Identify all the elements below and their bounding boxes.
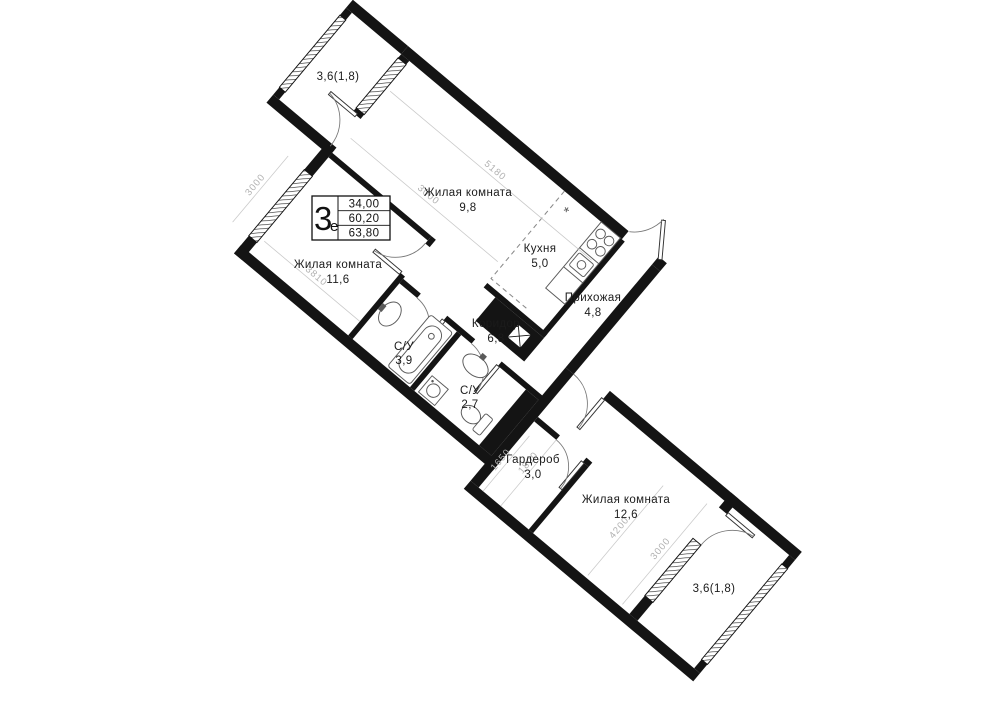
svg-text:Прихожая: Прихожая <box>565 292 622 304</box>
svg-text:Кухня: Кухня <box>524 243 557 255</box>
room-label-balcony-bottom: 3,6(1,8) <box>693 583 736 595</box>
plan-geometry: * 5180 3000 3810 3000 1650 1800 4200 300… <box>158 0 909 681</box>
room-label-kitchen: Кухня 5,0 <box>524 243 557 270</box>
svg-text:5,0: 5,0 <box>531 258 548 270</box>
room-label-balcony-top: 3,6(1,8) <box>317 71 360 83</box>
vent-symbol: * <box>557 204 572 220</box>
svg-text:9,8: 9,8 <box>459 202 476 214</box>
svg-text:Жилая комната: Жилая комната <box>424 187 512 199</box>
entrance-door <box>628 207 683 261</box>
glazing-balcony-bottom <box>702 564 788 665</box>
svg-text:3,0: 3,0 <box>524 469 541 481</box>
svg-text:4,8: 4,8 <box>584 307 601 319</box>
badge-total-area: 63,80 <box>349 228 380 240</box>
svg-text:6,8: 6,8 <box>487 333 504 345</box>
door-living3-balcony <box>701 513 755 568</box>
svg-text:Гардероб: Гардероб <box>506 454 560 466</box>
svg-text:С/У: С/У <box>460 385 480 397</box>
floor-plan-page: * 5180 3000 3810 3000 1650 1800 4200 300… <box>0 0 1000 707</box>
svg-text:12,6: 12,6 <box>614 509 638 521</box>
svg-text:2,7: 2,7 <box>461 399 478 411</box>
room-label-bath2: С/У 2,7 <box>460 385 480 411</box>
svg-text:3,9: 3,9 <box>395 355 412 367</box>
svg-text:Жилая комната: Жилая комната <box>582 494 670 506</box>
floor-plan-canvas: * 5180 3000 3810 3000 1650 1800 4200 300… <box>0 0 1000 707</box>
badge-area: 60,20 <box>349 213 380 225</box>
badge-living-area: 34,00 <box>349 199 380 211</box>
svg-text:Коридор: Коридор <box>472 318 520 330</box>
svg-text:11,6: 11,6 <box>326 274 349 286</box>
badge-type-suffix: е <box>330 218 338 235</box>
room-label-living3: Жилая комната 12,6 <box>582 494 670 521</box>
window-living1 <box>356 58 406 115</box>
doors <box>230 3 872 604</box>
sink-icon-bath1 <box>372 296 406 331</box>
apartment-type-badge: 3 е 34,00 60,20 63,80 <box>312 196 390 240</box>
svg-text:Жилая комната: Жилая комната <box>294 259 382 271</box>
svg-text:С/У: С/У <box>394 341 414 353</box>
